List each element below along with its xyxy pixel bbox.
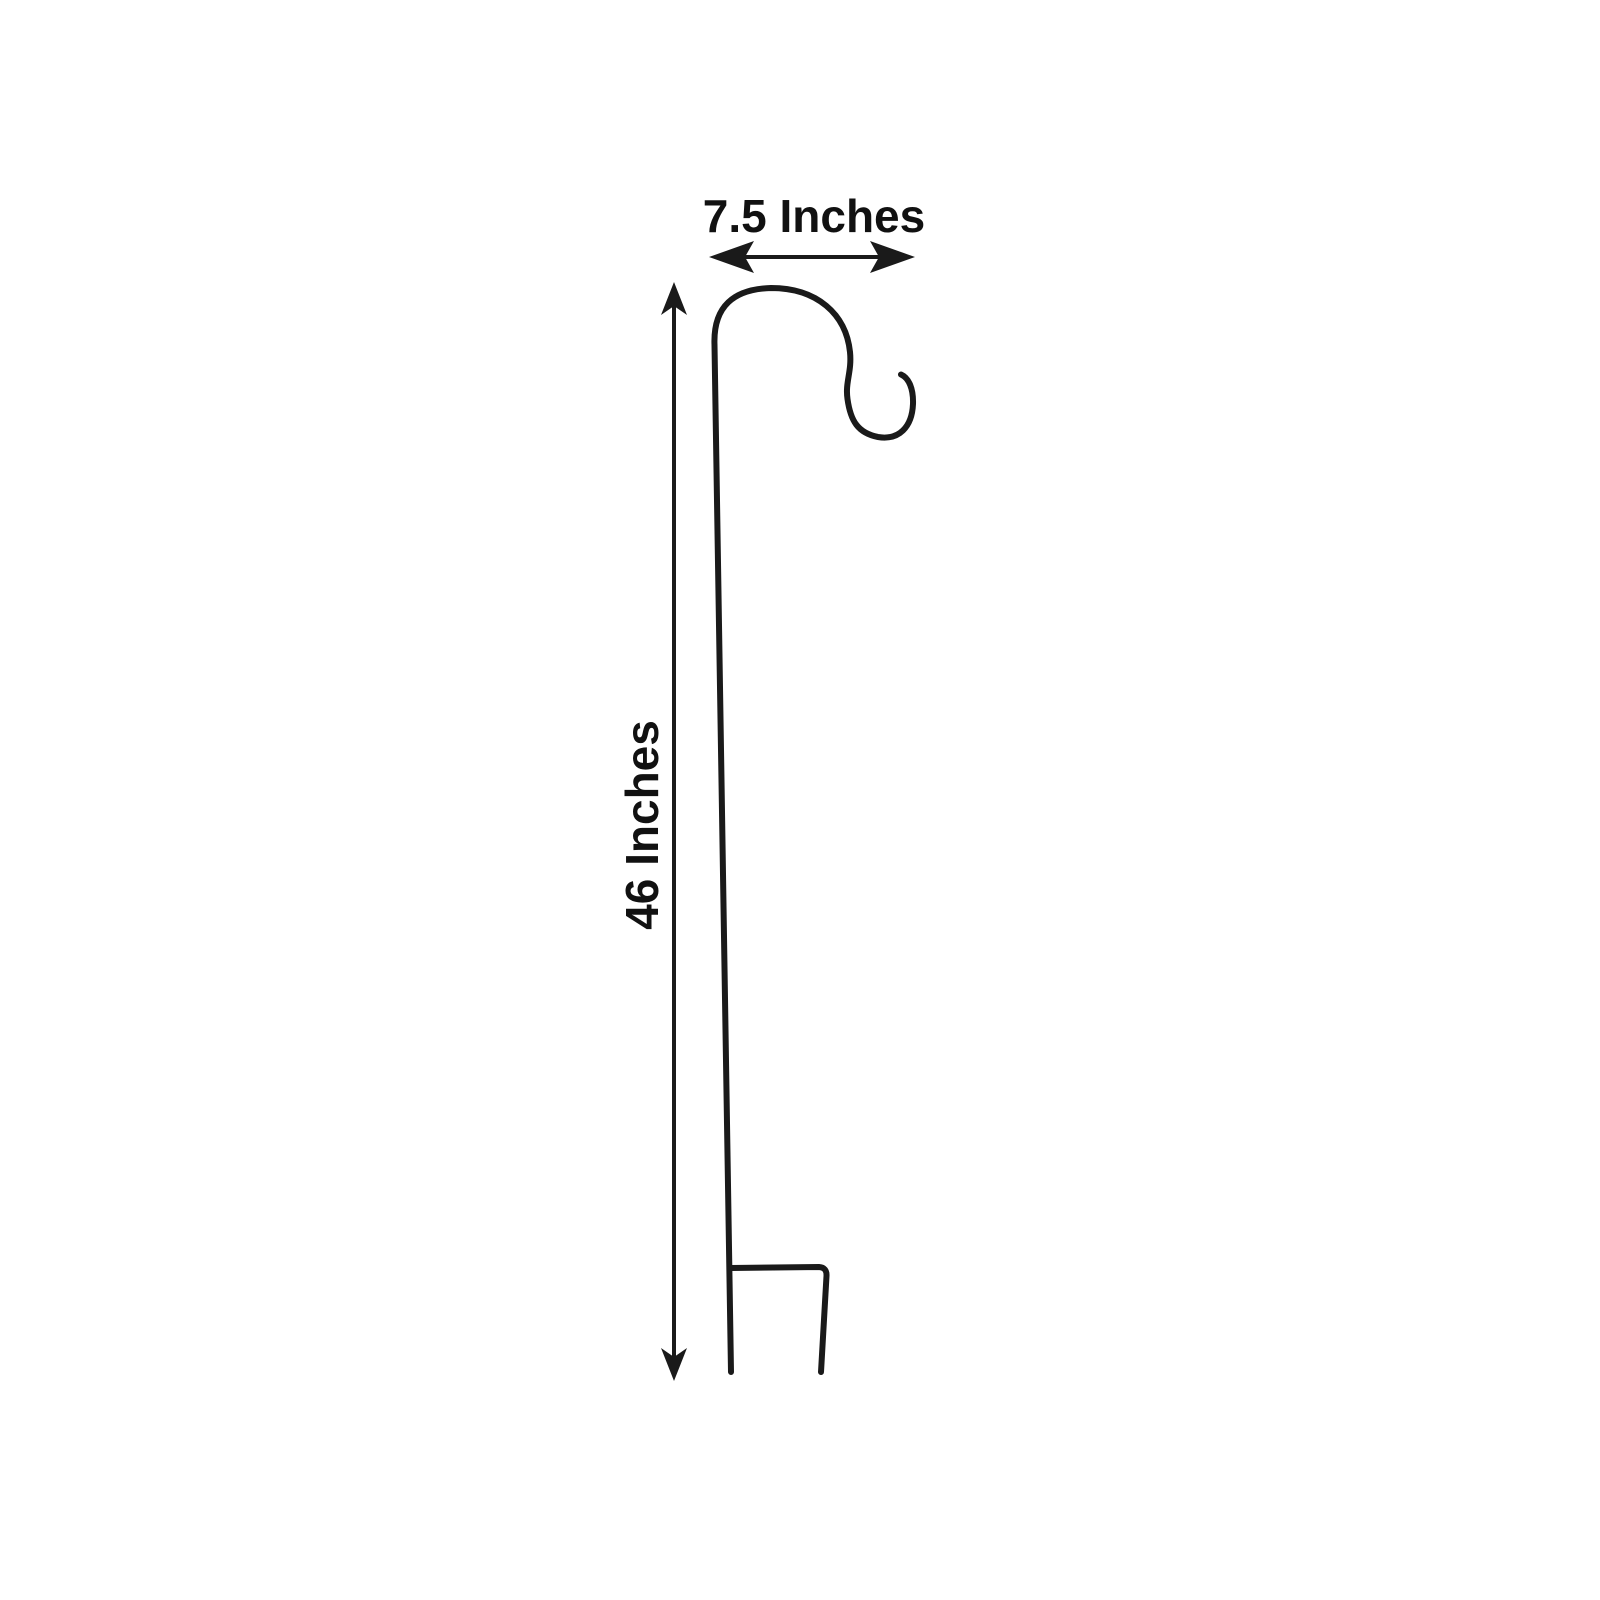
width-dimension-arrow [709, 241, 915, 273]
width-dimension-label: 7.5 Inches [664, 192, 964, 240]
shepherd-hook-outline [714, 288, 913, 1372]
ground-stake-prong [731, 1267, 827, 1372]
product-dimension-diagram: 7.5 Inches 46 Inches [0, 0, 1600, 1600]
height-dimension-label: 46 Inches [618, 675, 666, 975]
